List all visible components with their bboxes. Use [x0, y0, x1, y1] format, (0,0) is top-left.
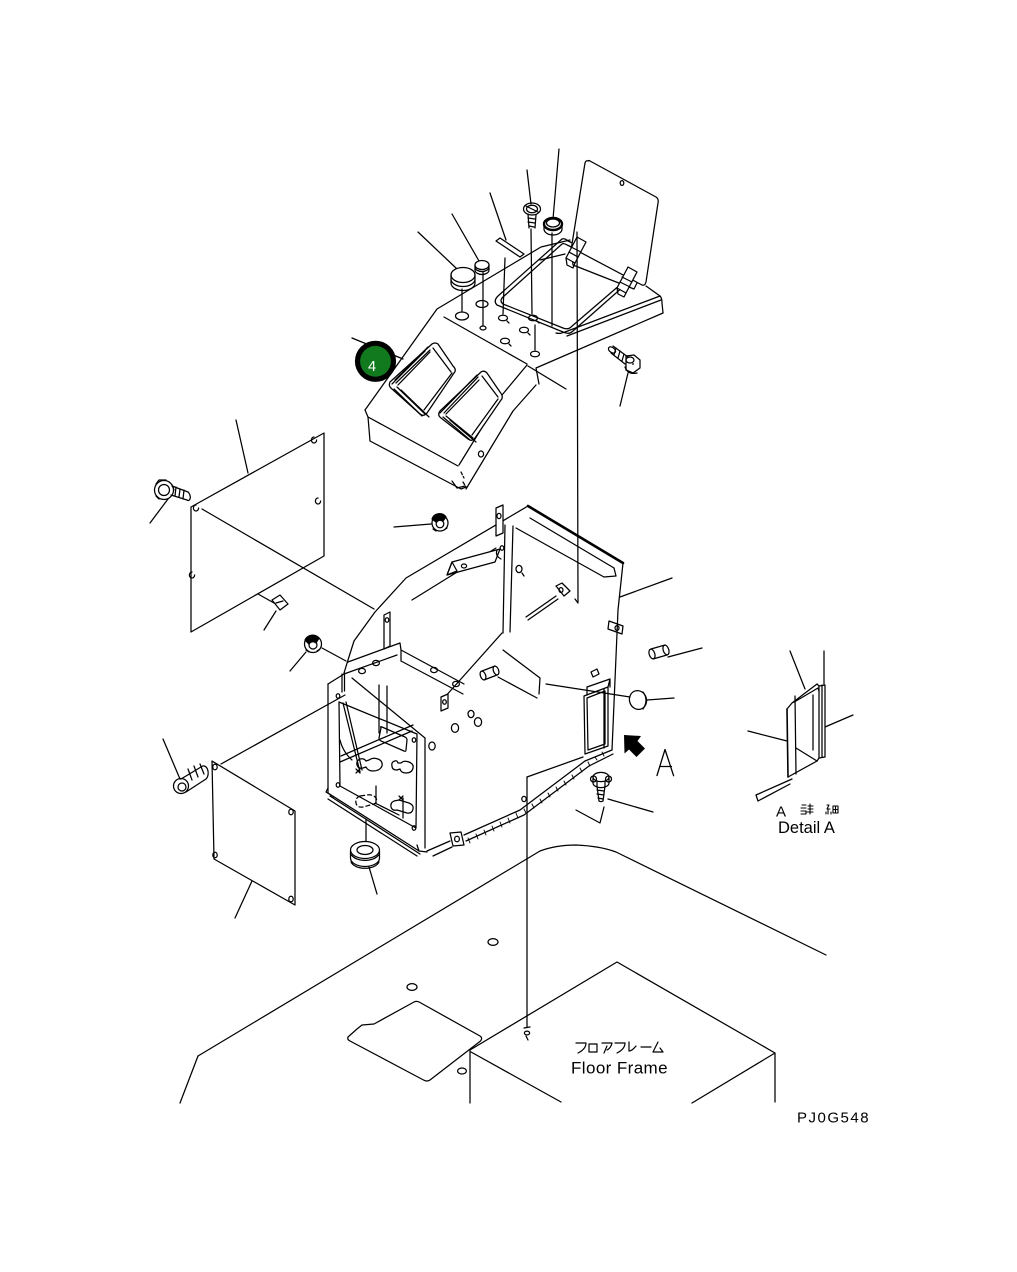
svg-text:Floor Frame: Floor Frame	[571, 1059, 668, 1078]
svg-text:Detail A: Detail A	[778, 819, 835, 837]
svg-text:PJ0G548: PJ0G548	[797, 1110, 870, 1127]
svg-text:A: A	[776, 804, 786, 821]
svg-text:4: 4	[368, 359, 376, 375]
